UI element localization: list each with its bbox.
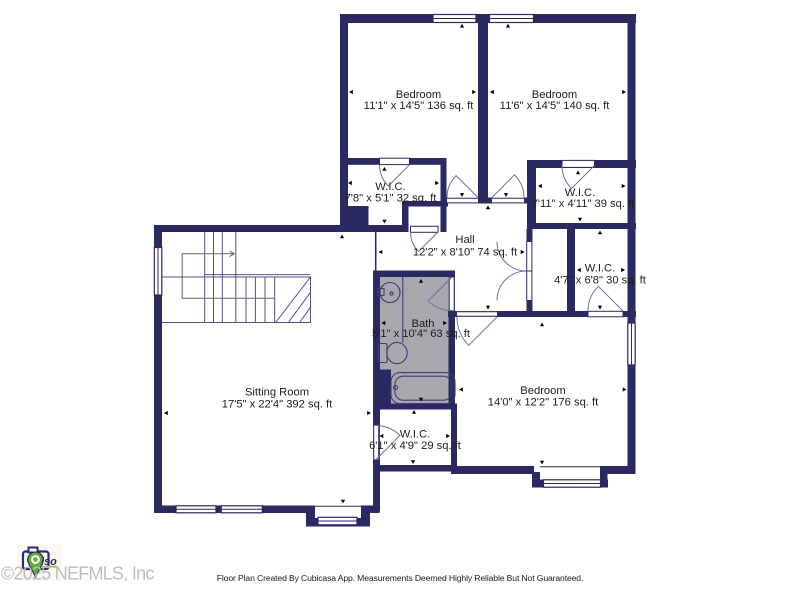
svg-text:W.I.C.: W.I.C. bbox=[375, 181, 405, 193]
svg-text:Bedroom: Bedroom bbox=[520, 385, 565, 397]
svg-text:11'6" x 14'5" 140 sq. ft: 11'6" x 14'5" 140 sq. ft bbox=[500, 100, 611, 112]
svg-text:Floor Plan Created By Cubicasa: Floor Plan Created By Cubicasa App. Meas… bbox=[217, 573, 583, 583]
svg-text:Sitting Room: Sitting Room bbox=[245, 387, 309, 399]
svg-text:5'1" x 10'4" 63 sq. ft: 5'1" x 10'4" 63 sq. ft bbox=[372, 328, 471, 340]
svg-text:17'5" x 22'4" 392 sq. ft: 17'5" x 22'4" 392 sq. ft bbox=[222, 399, 333, 411]
svg-text:4'7" x 6'8" 30 sq. ft: 4'7" x 6'8" 30 sq. ft bbox=[554, 275, 647, 287]
svg-text:©2025 NEFMLS, Inc: ©2025 NEFMLS, Inc bbox=[1, 564, 154, 584]
svg-text:6'1" x 4'9" 29 sq. ft: 6'1" x 4'9" 29 sq. ft bbox=[369, 440, 462, 452]
svg-text:W.I.C.: W.I.C. bbox=[585, 263, 615, 275]
svg-text:12'2" x 8'10" 74 sq. ft: 12'2" x 8'10" 74 sq. ft bbox=[413, 247, 518, 259]
svg-text:W.I.C.: W.I.C. bbox=[400, 429, 430, 441]
svg-text:11'1" x 14'5" 136 sq. ft: 11'1" x 14'5" 136 sq. ft bbox=[364, 100, 475, 112]
svg-text:14'0" x 12'2" 176 sq. ft: 14'0" x 12'2" 176 sq. ft bbox=[488, 397, 599, 409]
svg-text:7'8" x 5'1" 32 sq. ft: 7'8" x 5'1" 32 sq. ft bbox=[345, 193, 438, 205]
svg-text:Hall: Hall bbox=[455, 234, 474, 246]
svg-text:7'11" x 4'11" 39 sq. ft: 7'11" x 4'11" 39 sq. ft bbox=[532, 198, 635, 210]
